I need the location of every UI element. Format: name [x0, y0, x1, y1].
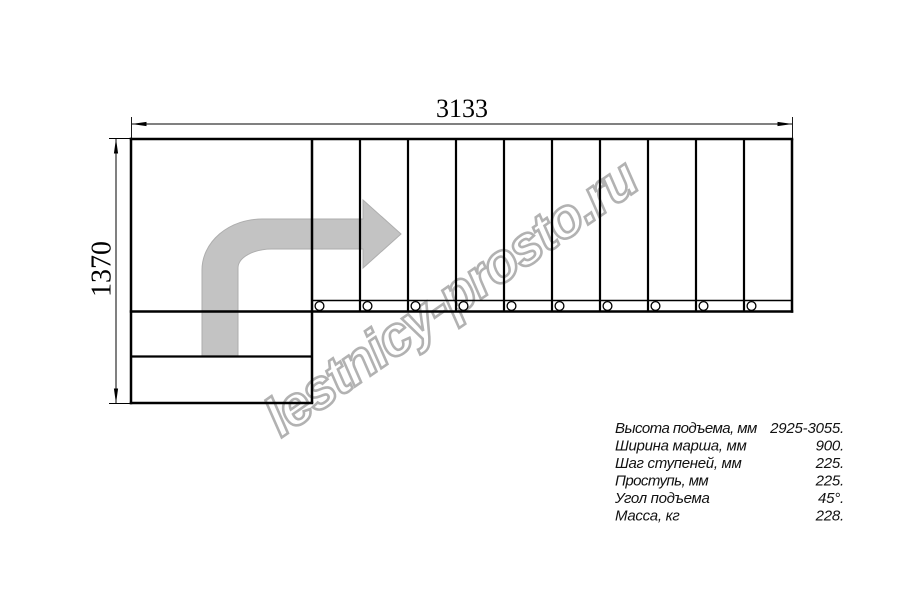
- svg-text:2925-3055.: 2925-3055.: [769, 420, 844, 437]
- svg-text:900.: 900.: [816, 438, 844, 455]
- svg-text:Угол подъема: Угол подъема: [614, 490, 710, 507]
- svg-text:1370: 1370: [87, 241, 118, 297]
- svg-text:3133: 3133: [436, 94, 488, 123]
- svg-text:Высота подъема, мм: Высота подъема, мм: [615, 420, 757, 437]
- svg-text:45°.: 45°.: [818, 490, 844, 507]
- svg-text:225.: 225.: [815, 455, 844, 472]
- svg-text:Шаг ступеней, мм: Шаг ступеней, мм: [615, 455, 742, 472]
- svg-text:Масса, кг: Масса, кг: [615, 508, 680, 525]
- svg-text:Проступь, мм: Проступь, мм: [615, 473, 708, 490]
- svg-text:Ширина марша, мм: Ширина марша, мм: [615, 438, 746, 455]
- svg-text:225.: 225.: [815, 473, 844, 490]
- svg-text:228.: 228.: [815, 508, 844, 525]
